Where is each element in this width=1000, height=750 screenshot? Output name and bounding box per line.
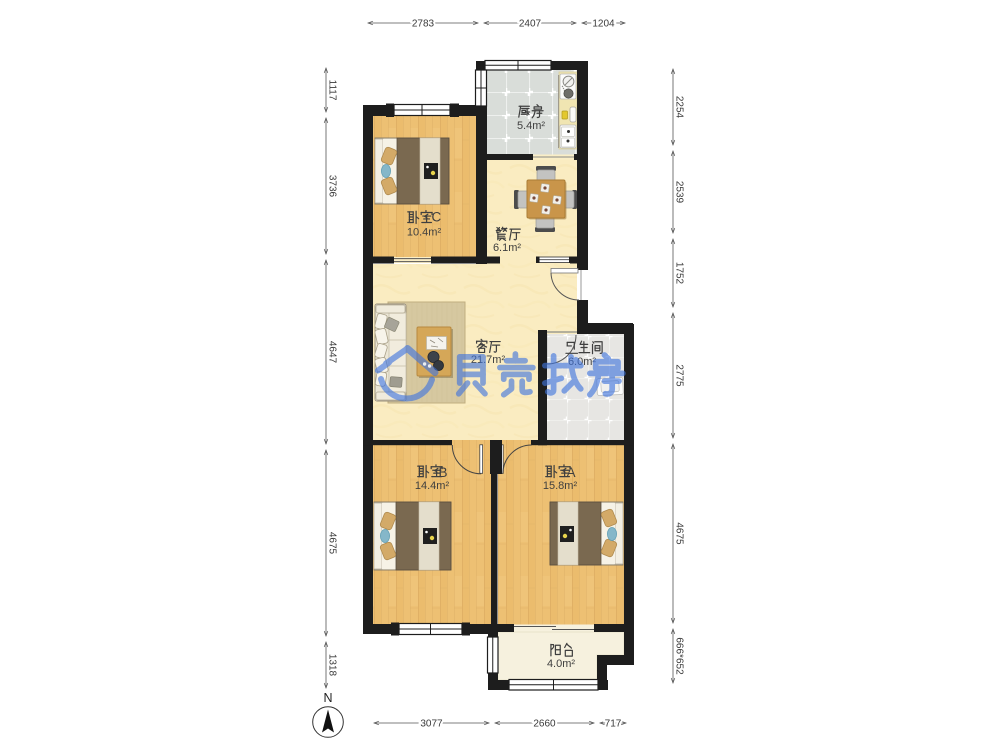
svg-text:2539: 2539	[674, 181, 685, 204]
svg-text:4675: 4675	[327, 532, 338, 555]
svg-text:2407: 2407	[519, 19, 542, 30]
svg-text:N: N	[323, 691, 332, 705]
svg-text:3736: 3736	[327, 175, 338, 198]
svg-text:2254: 2254	[674, 96, 685, 119]
svg-text:1204: 1204	[592, 19, 615, 30]
svg-text:A: A	[567, 465, 576, 480]
svg-text:2660: 2660	[533, 719, 556, 730]
svg-text:14.4m²: 14.4m²	[415, 480, 450, 492]
svg-text:5.4m²: 5.4m²	[517, 120, 545, 132]
svg-text:3077: 3077	[420, 719, 443, 730]
svg-text:1318: 1318	[327, 654, 338, 677]
svg-text:B: B	[439, 465, 448, 480]
svg-text:6.1m²: 6.1m²	[493, 242, 521, 254]
svg-text:2783: 2783	[412, 19, 435, 30]
svg-text:666*652: 666*652	[674, 637, 685, 675]
svg-text:2775: 2775	[674, 364, 685, 387]
svg-text:C: C	[432, 210, 442, 225]
svg-text:4647: 4647	[327, 341, 338, 364]
svg-text:4675: 4675	[674, 522, 685, 545]
svg-text:1752: 1752	[674, 262, 685, 285]
svg-text:1117: 1117	[327, 80, 338, 101]
svg-text:4.0m²: 4.0m²	[547, 658, 575, 670]
svg-text:717: 717	[605, 719, 622, 730]
svg-text:15.8m²: 15.8m²	[543, 480, 578, 492]
svg-text:10.4m²: 10.4m²	[407, 227, 442, 239]
